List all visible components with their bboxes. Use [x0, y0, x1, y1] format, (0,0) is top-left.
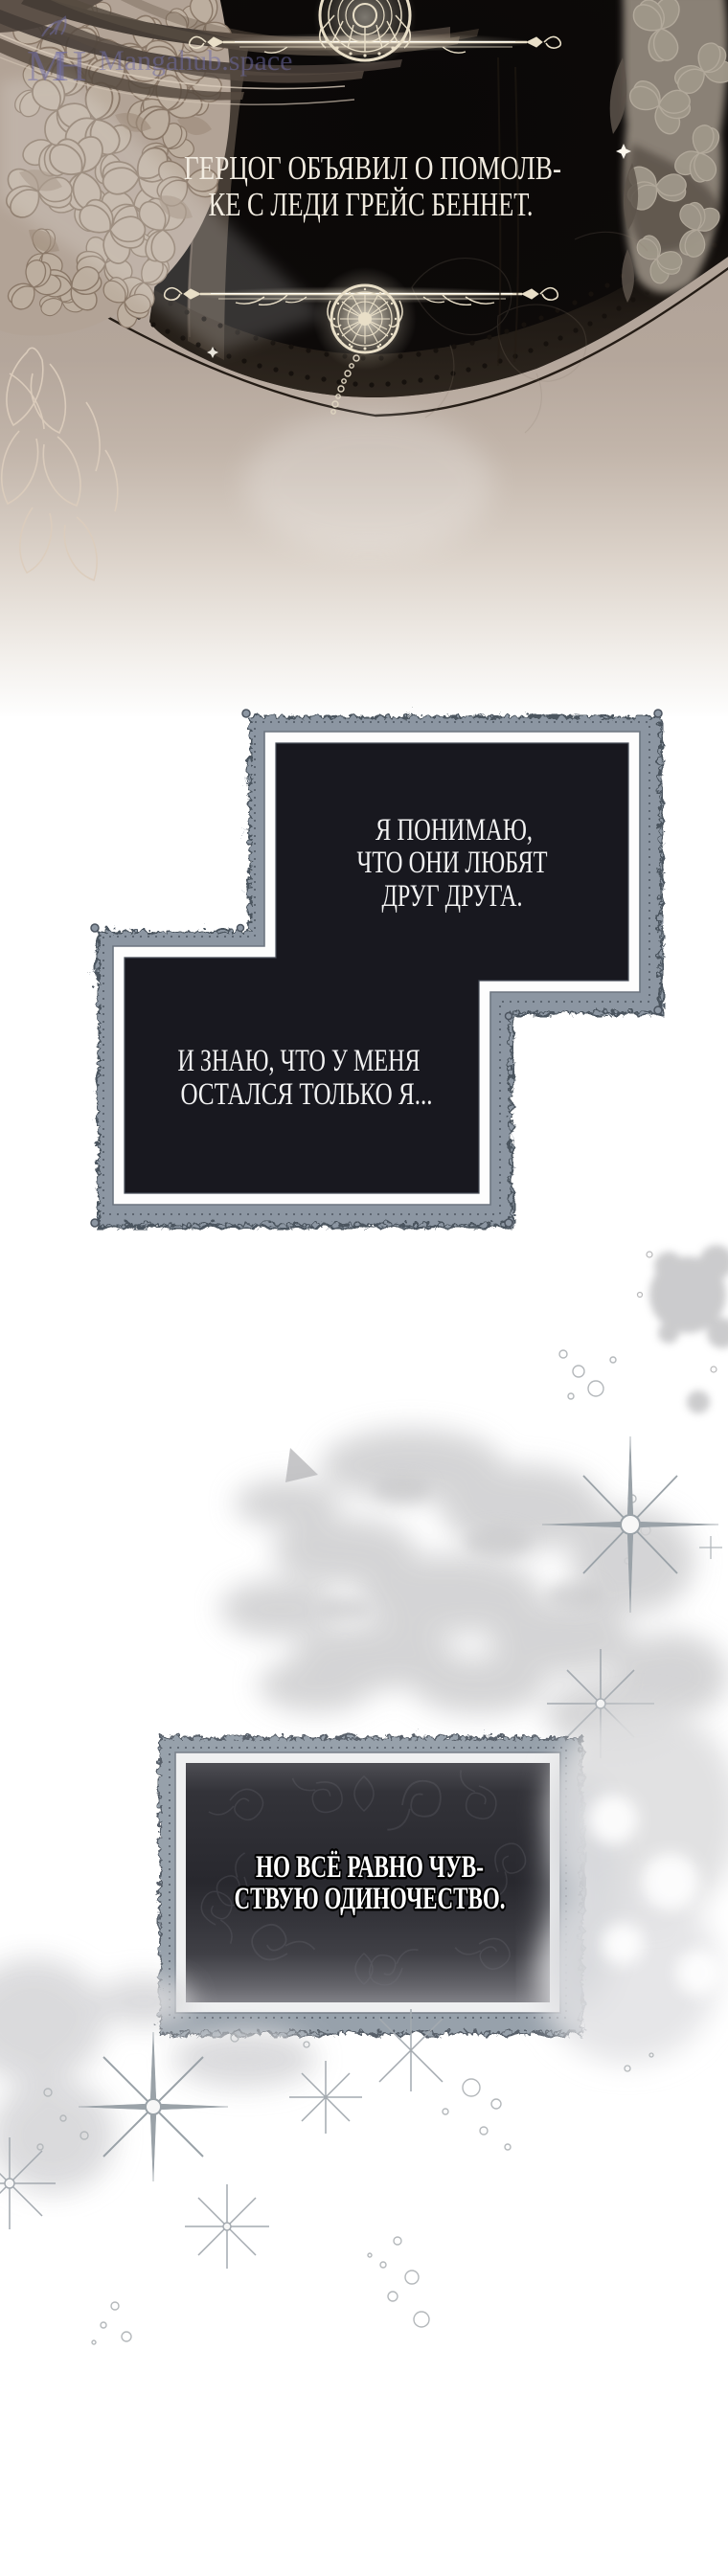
- svg-text:ГЕРЦОГ ОБЪЯВИЛ О ПОМОЛВ-: ГЕРЦОГ ОБЪЯВИЛ О ПОМОЛВ-: [184, 149, 561, 187]
- svg-text:НО ВСЁ РАВНО ЧУВ-: НО ВСЁ РАВНО ЧУВ-: [256, 1850, 484, 1885]
- svg-text:ЧТО ОНИ ЛЮБЯТ: ЧТО ОНИ ЛЮБЯТ: [357, 846, 548, 880]
- svg-text:ОСТАЛСЯ ТОЛЬКО Я...: ОСТАЛСЯ ТОЛЬКО Я...: [181, 1077, 433, 1112]
- svg-text:И ЗНАЮ, ЧТО У МЕНЯ: И ЗНАЮ, ЧТО У МЕНЯ: [178, 1044, 421, 1078]
- svg-text:СТВУЮ ОДИНОЧЕСТВО.: СТВУЮ ОДИНОЧЕСТВО.: [235, 1882, 506, 1916]
- svg-text:Я ПОНИМАЮ,: Я ПОНИМАЮ,: [375, 813, 533, 847]
- svg-text:ДРУГ ДРУГА.: ДРУГ ДРУГА.: [382, 879, 523, 914]
- svg-text:КЕ С ЛЕДИ ГРЕЙС БЕННЕТ.: КЕ С ЛЕДИ ГРЕЙС БЕННЕТ.: [209, 186, 534, 223]
- svg-text:Mangahub.space: Mangahub.space: [99, 45, 292, 77]
- svg-text:H: H: [55, 41, 86, 90]
